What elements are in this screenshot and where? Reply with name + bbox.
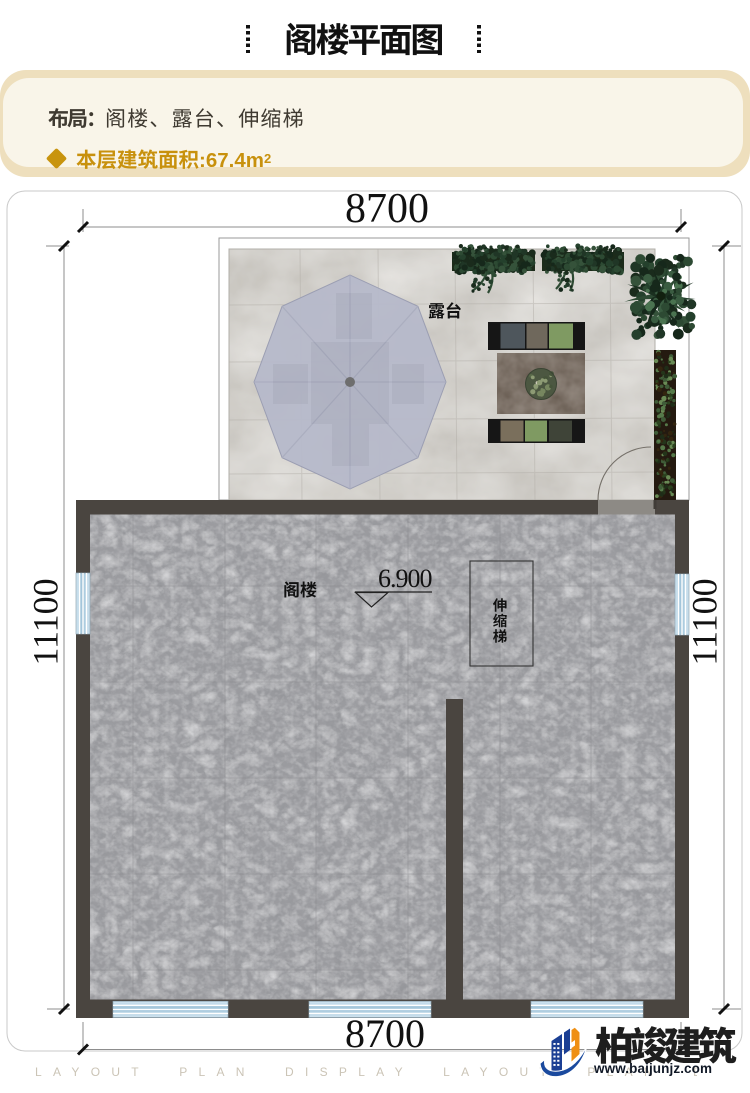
svg-text:6.900: 6.900 xyxy=(378,564,433,593)
svg-text:11100: 11100 xyxy=(685,578,725,665)
svg-text:11100: 11100 xyxy=(26,578,66,665)
svg-text:露台: 露台 xyxy=(428,297,462,322)
svg-text:8700: 8700 xyxy=(345,1011,425,1056)
svg-text:梯: 梯 xyxy=(493,626,508,647)
svg-text:8700: 8700 xyxy=(345,186,429,232)
svg-text:阁楼: 阁楼 xyxy=(283,576,317,601)
